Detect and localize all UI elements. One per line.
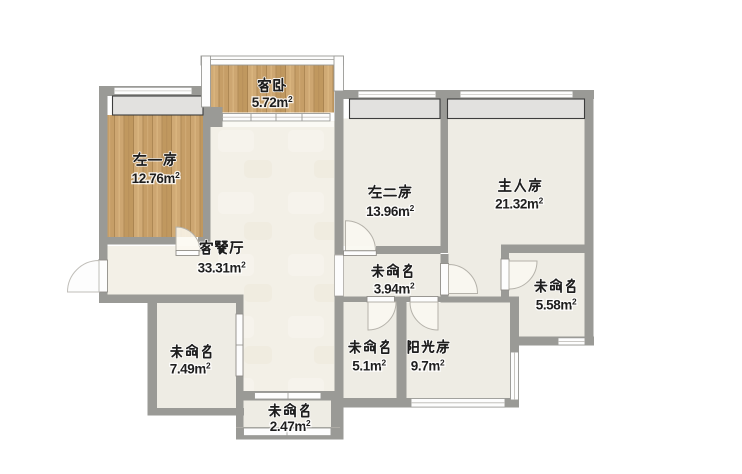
svg-text:5.1m2: 5.1m2 <box>352 357 386 373</box>
svg-text:9.7m2: 9.7m2 <box>411 357 445 373</box>
svg-text:3.94m2: 3.94m2 <box>374 280 415 296</box>
svg-text:33.31m2: 33.31m2 <box>198 259 246 275</box>
svg-text:7.49m2: 7.49m2 <box>170 360 211 376</box>
svg-text:2.47m2: 2.47m2 <box>270 418 311 434</box>
svg-text:13.96m2: 13.96m2 <box>366 203 414 219</box>
svg-text:21.32m2: 21.32m2 <box>495 195 543 211</box>
svg-text:5.58m2: 5.58m2 <box>536 296 577 312</box>
svg-text:12.76m2: 12.76m2 <box>132 170 180 186</box>
svg-text:5.72m2: 5.72m2 <box>252 94 293 110</box>
